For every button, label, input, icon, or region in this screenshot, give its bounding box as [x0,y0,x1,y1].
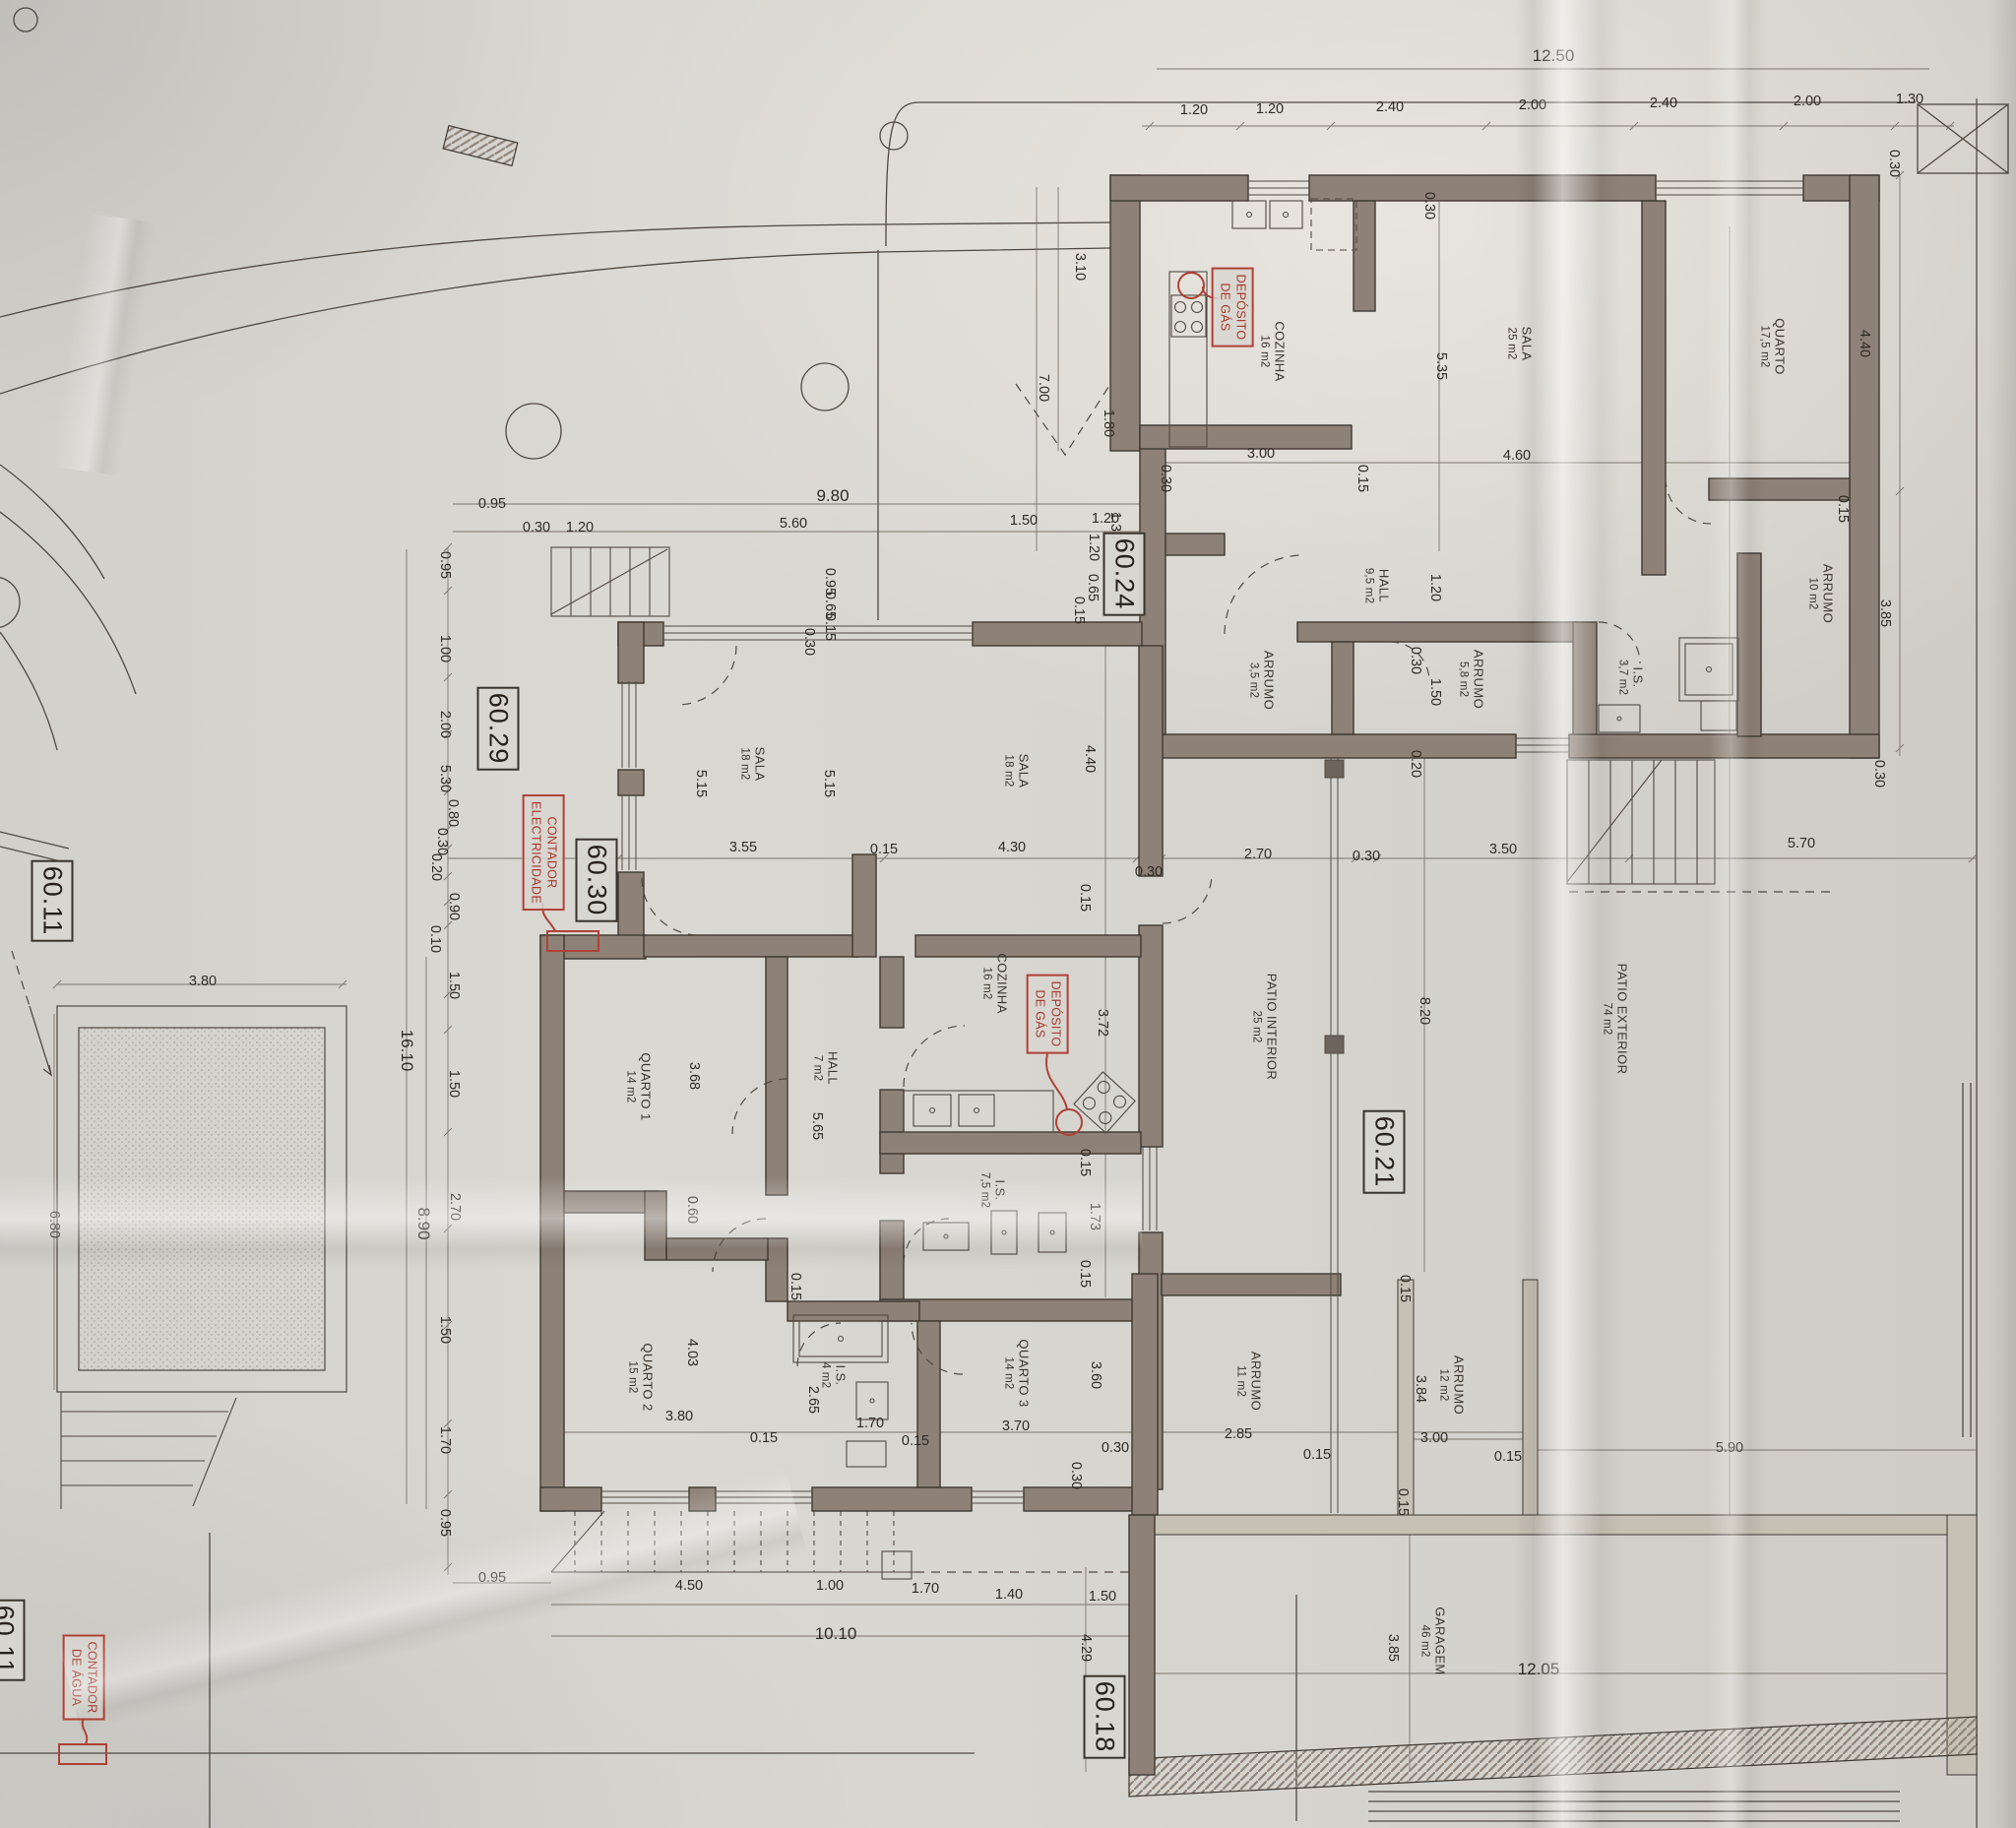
dimension-label: 1.80 [1101,410,1116,437]
dimension-label: 1.73 [1087,1203,1102,1230]
dimension-label: 5.35 [1433,352,1449,380]
dimension-label: 3.70 [1002,1418,1030,1434]
dimension-label: 2.00 [1519,97,1546,113]
dimension-label: 0.15 [1077,1260,1093,1288]
dimension-label: 0.15 [1835,495,1851,523]
dimension-label: 4.30 [998,840,1026,855]
dimension-label: 5.30 [437,765,453,792]
dimension-label: 16.10 [397,1030,416,1072]
dimension-label: 1.50 [1010,513,1038,529]
dimension-label: 3.80 [189,974,217,989]
room-area: 12 m2 [1436,1369,1450,1402]
dimension-label: 1.70 [912,1581,939,1597]
room-label: PATIO INTERIOR25 m2 [1249,974,1280,1080]
room-area: 25 m2 [1504,328,1518,360]
dimension-label: 0.15 [1071,597,1087,624]
dimension-label: 0.15 [1494,1449,1522,1465]
red-annotation: DEPÓSITO DE GÁS [1026,975,1068,1054]
room-name: QUARTO [1771,318,1787,375]
dimension-label: 4.40 [1082,745,1098,773]
dimension-label: 3.10 [1072,253,1088,281]
room-area: 3,7 m2 [1615,660,1629,695]
room-name: PATIO EXTERIOR [1613,964,1629,1075]
room-label: SALA18 m2 [1001,754,1032,788]
room-area: 46 m2 [1417,1625,1431,1658]
room-label: I.S.7,5 m2 [977,1172,1008,1208]
room-label: GARAGEM46 m2 [1417,1607,1448,1674]
dimension-label: 0.95 [478,496,506,512]
room-label: QUARTO 314 m2 [1001,1339,1032,1407]
dimension-label: 0.90 [446,893,462,920]
dimension-label: 0.10 [427,925,443,953]
dimension-label: 3.85 [1877,599,1893,627]
dimension-label: 5.70 [1788,836,1815,851]
dimension-label: 5.65 [809,1112,825,1140]
room-area: 4 m2 [818,1362,832,1388]
dimension-label: 9.80 [816,486,849,506]
dimension-label: 0.30 [1421,192,1437,220]
dimension-label: 0.15 [1395,1488,1411,1516]
dimension-label: 12.50 [1533,46,1575,66]
room-area: 10 m2 [1805,578,1819,610]
dimension-label: 3.00 [1247,446,1275,462]
dimension-label: 2.40 [1650,95,1677,111]
room-area: 5,8 m2 [1456,662,1470,697]
room-label: ARRUMO11 m2 [1233,1352,1264,1411]
dimension-label: 4.40 [1857,330,1872,357]
room-label: QUARTO 114 m2 [623,1052,654,1120]
room-name: ARRUMO [1247,1352,1263,1411]
plan-labels: COZINHA16 m2SALA25 m2QUARTO17,5 m2HALL9,… [0,0,2016,1828]
dimension-label: 0.15 [750,1430,778,1446]
dimension-label: 0.15 [1397,1275,1413,1302]
dimension-label: 3.55 [729,840,757,855]
room-name: ARRUMO [1470,650,1485,709]
dimension-label: 1.50 [1089,1589,1116,1605]
dimension-label: 10.10 [815,1624,857,1644]
dimension-label: 0.30 [1102,1440,1129,1456]
room-name: I.S. [1629,666,1645,687]
room-label: HALL7 m2 [810,1051,841,1085]
dimension-label: 4.60 [1503,448,1531,464]
dimension-label: 1.40 [995,1587,1023,1603]
dimension-label: 2.70 [447,1193,463,1221]
room-name: SALA [751,747,767,782]
dimension-label: 3.72 [1095,1009,1110,1037]
dimension-label: 0.15 [822,613,838,641]
room-name: I.S. [832,1364,848,1385]
dimension-label: 0.30 [1886,150,1902,177]
room-area: 74 m2 [1600,1003,1613,1036]
room-label: ARRUMO12 m2 [1436,1355,1467,1415]
dimension-label: 3.00 [1420,1430,1448,1446]
room-area: 18 m2 [1001,755,1015,788]
level-marker: 60.11 [0,1600,26,1681]
dimension-label: 1.00 [437,635,453,662]
room-label: COZINHA16 m2 [1257,321,1288,381]
dimension-label: 3.84 [1413,1375,1428,1403]
dimension-label: 0.80 [445,799,461,827]
dimension-label: 0.95 [437,1509,453,1537]
room-name: ARRUMO [1819,564,1835,623]
red-annotation: CONTADOR ELECTRICIDADE [522,794,564,911]
dimension-label: 5.15 [693,770,709,797]
dimension-label: 0.15 [870,842,898,857]
dimension-label: 1.20 [1092,511,1119,527]
level-marker: 60.18 [1084,1675,1126,1759]
dimension-label: 1.50 [446,1070,462,1098]
room-name: SALA [1518,327,1534,361]
room-area: 7 m2 [810,1055,824,1081]
dimension-label: 0.60 [684,1196,700,1224]
dimension-label: 5.90 [1716,1440,1743,1456]
room-area: 16 m2 [979,968,993,1000]
dimension-label: 4.29 [1078,1634,1094,1662]
room-area: 18 m2 [737,748,751,781]
room-name: GARAGEM [1431,1607,1447,1674]
dimension-label: 5.60 [780,516,807,532]
room-label: PATIO EXTERIOR74 m2 [1600,964,1630,1075]
room-name: QUARTO 3 [1015,1339,1031,1407]
dimension-label: 8.20 [1417,997,1432,1025]
room-label: SALA18 m2 [737,747,768,782]
level-marker: 60.24 [1103,533,1146,616]
room-area: 3,5 m2 [1246,662,1260,698]
dimension-label: 1.70 [856,1416,884,1431]
red-annotation: CONTADOR DE ÁGUA [62,1635,104,1721]
dimension-label: 4.03 [684,1339,700,1366]
dimension-label: 0.15 [787,1273,803,1300]
room-label: I.S.3,7 m2 [1615,660,1646,695]
room-name: PATIO INTERIOR [1263,974,1279,1080]
dimension-label: 1.50 [1427,678,1443,706]
dimension-label: 2.65 [805,1386,821,1414]
dimension-label: 0.30 [1871,760,1887,788]
room-label: QUARTO 215 m2 [625,1343,656,1411]
dimension-label: 1.20 [1427,574,1443,601]
room-name: QUARTO 2 [639,1343,655,1411]
room-area: 7,5 m2 [977,1172,991,1208]
room-name: HALL [1375,569,1391,602]
room-label: SALA25 m2 [1504,327,1535,361]
dimension-label: 7.00 [1036,374,1051,402]
dimension-label: 1.50 [437,1316,453,1344]
dimension-label: 0.30 [1068,1462,1084,1489]
level-marker: 60.29 [477,687,520,771]
room-area: 16 m2 [1257,336,1271,368]
dimension-label: 12.05 [1518,1660,1560,1679]
dimension-label: 2.85 [1225,1426,1252,1442]
dimension-label: 0.95 [478,1570,506,1586]
red-annotation: DEPÓSITO DE GÁS [1211,268,1253,347]
room-area: 17,5 m2 [1757,326,1771,368]
room-name: SALA [1015,754,1031,788]
room-name: COZINHA [993,953,1009,1013]
dimension-label: 1.20 [1256,101,1284,117]
room-area: 14 m2 [623,1071,637,1103]
room-name: QUARTO 1 [637,1052,653,1120]
room-label: QUARTO17,5 m2 [1757,318,1788,375]
dimension-label: 1.50 [446,972,462,999]
dimension-label: 4.50 [675,1578,703,1594]
dimension-label: 2.70 [1244,847,1272,862]
dimension-label: 0.30 [523,520,550,536]
dimension-label: 6.80 [46,1211,62,1238]
room-name: COZINHA [1271,321,1287,381]
room-name: ARRUMO [1260,651,1276,710]
dimension-label: 0.15 [902,1433,929,1449]
dimension-label: 0.15 [1303,1447,1331,1463]
dimension-label: 8.90 [413,1207,433,1239]
room-name: ARRUMO [1450,1355,1466,1415]
room-area: 9,5 m2 [1361,568,1375,603]
dimension-label: 0.20 [1408,750,1423,778]
dimension-label: 0.30 [1408,647,1423,674]
dimension-label: 1.20 [1086,534,1102,561]
dimension-label: 3.80 [665,1409,693,1424]
level-marker: 60.11 [31,860,74,942]
room-name: I.S. [991,1179,1007,1200]
dimension-label: 0.95 [437,551,453,579]
room-label: I.S.4 m2 [818,1362,849,1388]
dimension-label: 0.15 [1077,884,1093,912]
dimension-label: 5.15 [821,770,837,797]
room-area: 14 m2 [1001,1357,1015,1390]
dimension-label: 3.50 [1489,842,1517,857]
dimension-label: 2.00 [1794,94,1821,109]
level-marker: 60.21 [1363,1110,1406,1194]
dimension-label: 1.00 [816,1578,844,1594]
room-label: COZINHA16 m2 [979,953,1010,1013]
dimension-label: 0.20 [428,853,444,881]
dimension-label: 2.40 [1376,99,1404,115]
room-label: ARRUMO5,8 m2 [1456,650,1486,709]
dimension-label: 3.68 [686,1062,702,1090]
level-marker: 60.30 [576,839,618,922]
dimension-label: 0.30 [1353,849,1380,864]
dimension-label: 0.15 [1354,465,1370,492]
room-label: ARRUMO10 m2 [1805,564,1836,623]
room-area: 11 m2 [1233,1365,1247,1397]
dimension-label: 0.30 [434,828,450,855]
dimension-label: 0.30 [1158,465,1173,492]
dimension-label: 0.65 [1085,574,1101,601]
dimension-label: 0.30 [1135,864,1163,880]
room-area: 15 m2 [625,1361,639,1394]
dimension-label: 2.00 [437,711,453,738]
dimension-label: 1.30 [1896,92,1923,107]
dimension-label: 0.30 [801,628,817,656]
dimension-label: 3.85 [1385,1634,1401,1662]
room-name: HALL [824,1051,840,1085]
dimension-label: 1.20 [1180,102,1208,118]
room-area: 25 m2 [1249,1011,1263,1043]
dimension-label: 1.70 [437,1426,453,1454]
dimension-label: 0.15 [1077,1149,1093,1176]
dimension-label: 1.20 [566,520,594,536]
room-label: HALL9,5 m2 [1361,568,1392,603]
room-label: ARRUMO3,5 m2 [1246,651,1277,710]
dimension-label: 3.60 [1088,1361,1103,1389]
floorplan-photo: COZINHA16 m2SALA25 m2QUARTO17,5 m2HALL9,… [0,0,2016,1828]
